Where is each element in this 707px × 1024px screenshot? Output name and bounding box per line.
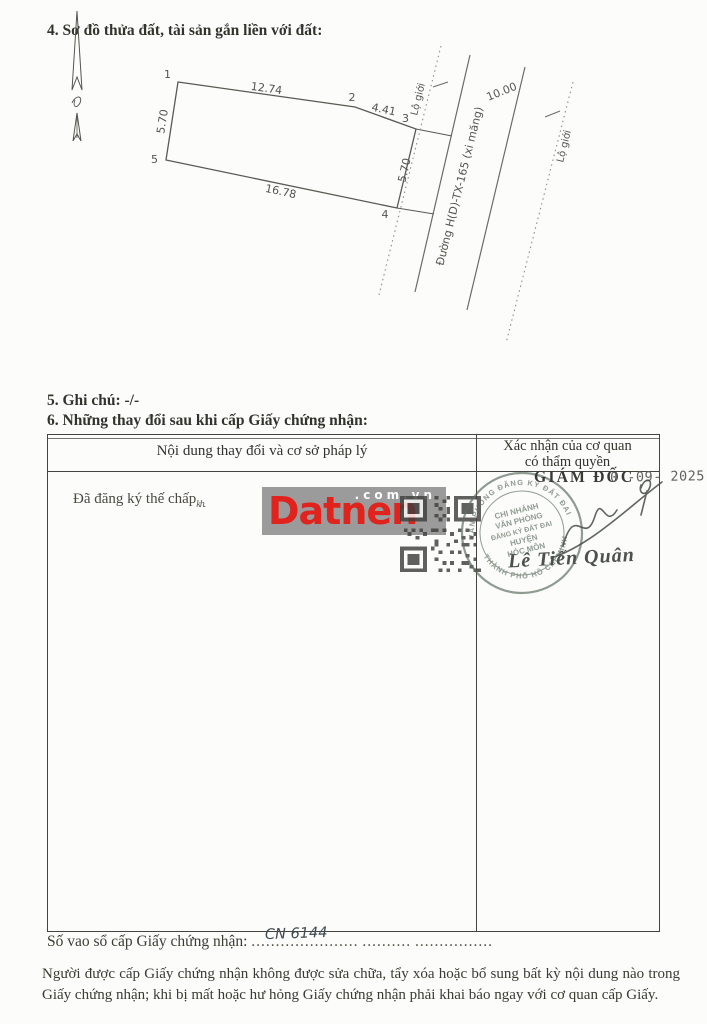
- plot-diagram: 1 2 3 4 5 12.74 4.41 5.70 5.70 16.78 Lộ …: [0, 0, 707, 345]
- mortgage-entry-text: Đã đăng ký thế chấp: [73, 491, 196, 507]
- boundary-tick-2: [545, 111, 560, 117]
- road-edge-2: [467, 67, 525, 310]
- watermark-brand: Datnen: [268, 489, 417, 533]
- col-header-confirmation-line1: Xác nhận của cơ quan: [476, 438, 659, 454]
- boundary-dashed-line-2: [506, 82, 573, 343]
- dim-left: 5.70: [154, 108, 171, 134]
- footer-line1: Người được cấp Giấy chứng nhận không đượ…: [42, 964, 680, 985]
- dim-right: 5.70: [396, 157, 414, 184]
- register-number-line: Số vao sổ cấp Giấy chứng nhận: .........…: [47, 933, 493, 951]
- register-dots-c: ................: [415, 933, 493, 950]
- dim-top2: 4.41: [370, 101, 397, 119]
- vertex-4: 4: [382, 208, 389, 221]
- boundary-label-2: Lộ giới: [554, 129, 574, 164]
- scanned-land-certificate-page: 4. Sơ đồ thửa đất, tài sản gắn liền với …: [0, 0, 707, 1024]
- dim-top: 12.74: [250, 80, 283, 97]
- footer-line2: Giấy chứng nhận; khi bị mất hoặc hư hỏng…: [42, 985, 680, 1006]
- dim-bottom: 16.78: [264, 182, 298, 201]
- road-width-label: 10.00: [485, 80, 519, 104]
- register-value: CN 6144: [265, 925, 328, 943]
- section6-heading: 6. Những thay đổi sau khi cấp Giấy chứng…: [47, 412, 368, 430]
- vertex-3: 3: [402, 112, 409, 125]
- register-label: Số vao sổ cấp Giấy chứng nhận:: [47, 933, 247, 950]
- mortgage-entry-note: kh.: [196, 499, 205, 510]
- register-dots-b: ..........: [362, 933, 411, 950]
- road-name-label: Đường H(D)-TX-165 (xi măng): [434, 105, 486, 266]
- vertex-5: 5: [151, 153, 158, 166]
- vertex-2: 2: [349, 91, 356, 104]
- mortgage-entry: Đã đăng ký thế chấpkh.: [73, 491, 205, 510]
- boundary-tick-1: [433, 82, 448, 87]
- footer-note: Người được cấp Giấy chứng nhận không đượ…: [42, 964, 680, 1005]
- section5-heading: 5. Ghi chú: -/-: [47, 392, 139, 410]
- col-header-content: Nội dung thay đổi và cơ sở pháp lý: [48, 443, 476, 460]
- vertex-1: 1: [164, 68, 171, 81]
- boundary-label-1: Lộ giới: [408, 82, 428, 117]
- register-value-wrap: ......................CN 6144: [251, 933, 358, 951]
- north-arrow-icon: [72, 11, 82, 141]
